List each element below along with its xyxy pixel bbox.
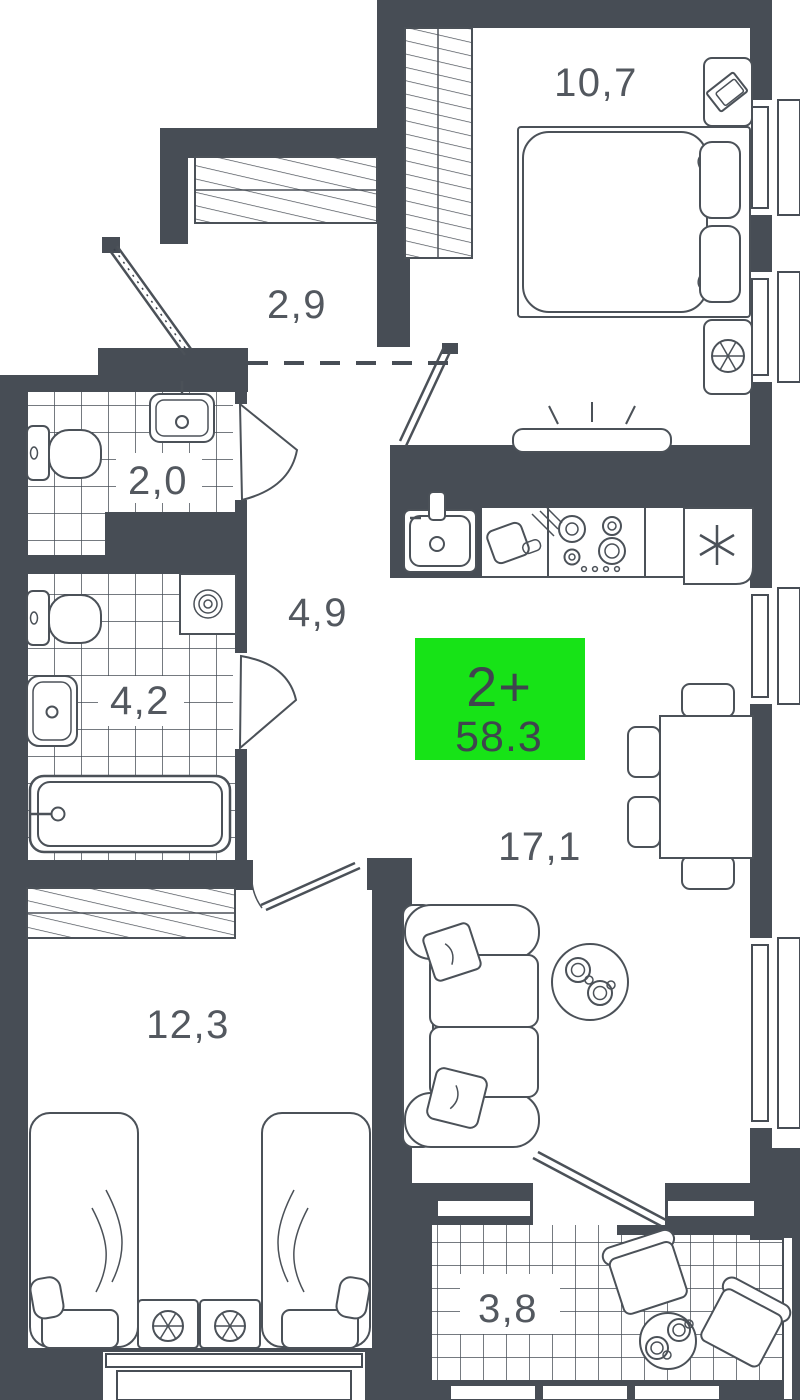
nightstand-icon (138, 1300, 198, 1348)
chair-icon (682, 856, 734, 889)
fridge-icon (684, 508, 753, 584)
toilet-icon (27, 591, 101, 645)
room-label-bedroom-1: 10,7 (554, 61, 638, 105)
wardrobe-icon (27, 888, 235, 938)
floor-plan: 10,7 2,9 2,0 4,9 4,2 12,3 17,1 3,8 2+ 58… (0, 0, 800, 1400)
badge-apartment-type: 2+ (466, 655, 532, 718)
single-bed-icon (29, 1113, 138, 1348)
dining-table-icon (660, 716, 753, 858)
room-label-balcony: 3,8 (478, 1287, 538, 1331)
balcony-railing (542, 1385, 628, 1400)
double-bed-icon (518, 127, 750, 317)
room-label-closet: 2,9 (267, 283, 327, 327)
sink-icon (27, 676, 77, 746)
wardrobe-icon (405, 28, 472, 258)
floor-plan-drawing: 10,7 2,9 2,0 4,9 4,2 12,3 17,1 3,8 2+ 58… (0, 0, 800, 1400)
window-icon (750, 588, 800, 704)
window-icon (103, 1352, 365, 1400)
balcony-railing (634, 1385, 720, 1400)
round-table-icon (640, 1313, 696, 1369)
wardrobe-icon (195, 157, 377, 223)
sofa-icon (403, 905, 539, 1147)
nightstand-icon (704, 58, 752, 126)
coffee-table-icon (552, 944, 628, 1020)
balcony-railing (450, 1385, 536, 1400)
nightstand-icon (200, 1300, 260, 1348)
window-icon (750, 938, 800, 1128)
balcony-glazing (437, 1200, 531, 1217)
room-label-bathroom: 4,2 (110, 679, 170, 723)
apartment-badge: 2+ 58.3 (415, 638, 585, 761)
single-bed-icon (262, 1113, 371, 1348)
window-icon (750, 272, 800, 382)
washing-machine-icon (180, 574, 236, 634)
room-label-living-kitchen: 17,1 (498, 825, 582, 869)
window-icon (750, 100, 800, 215)
room-label-wc: 2,0 (128, 459, 188, 503)
balcony-glazing (667, 1200, 755, 1217)
room-label-hallway: 4,9 (288, 591, 348, 635)
nightstand-icon (704, 320, 752, 394)
chair-icon (628, 797, 660, 847)
room-label-bedroom-2: 12,3 (146, 1003, 230, 1047)
bathtub-icon (30, 776, 230, 852)
chair-icon (628, 727, 660, 777)
badge-total-area: 58.3 (455, 713, 543, 761)
toilet-icon (27, 426, 101, 480)
chair-icon (682, 684, 734, 717)
